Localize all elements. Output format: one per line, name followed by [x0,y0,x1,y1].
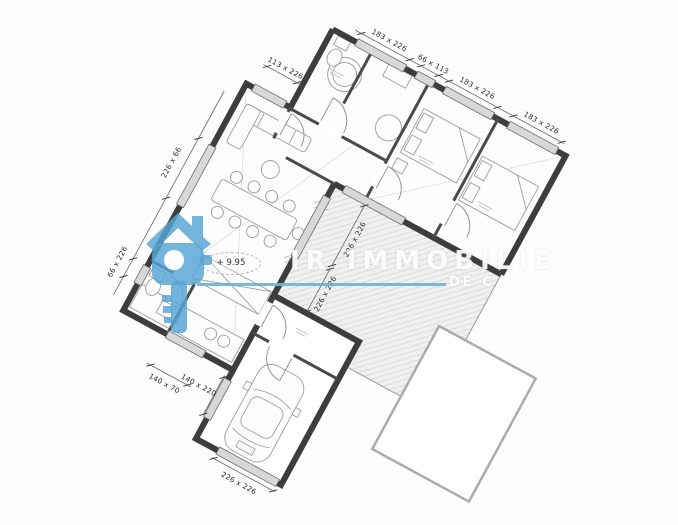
watermark-underline [197,283,446,286]
dimension-label-d10: 140 x 70 [147,371,181,395]
floor-plan-canvas: 113 x 226 183 x 226 66 x 113 183 x 226 1… [0,0,678,525]
dimension-label-d7: 66 x 226 [105,244,129,278]
watermark-text-line2: DE C [449,275,495,290]
watermark-text-line1: IR IMMOBILIE [290,246,558,276]
house-key-logo-icon [140,203,216,337]
dimension-label-d6: 226 x 66 [159,145,183,179]
coffee-table [258,157,282,181]
nightstand [392,158,408,174]
dimension-label-d11: 140 x 220 [180,372,219,399]
dimension-label-d1: 113 x 226 [266,55,305,82]
